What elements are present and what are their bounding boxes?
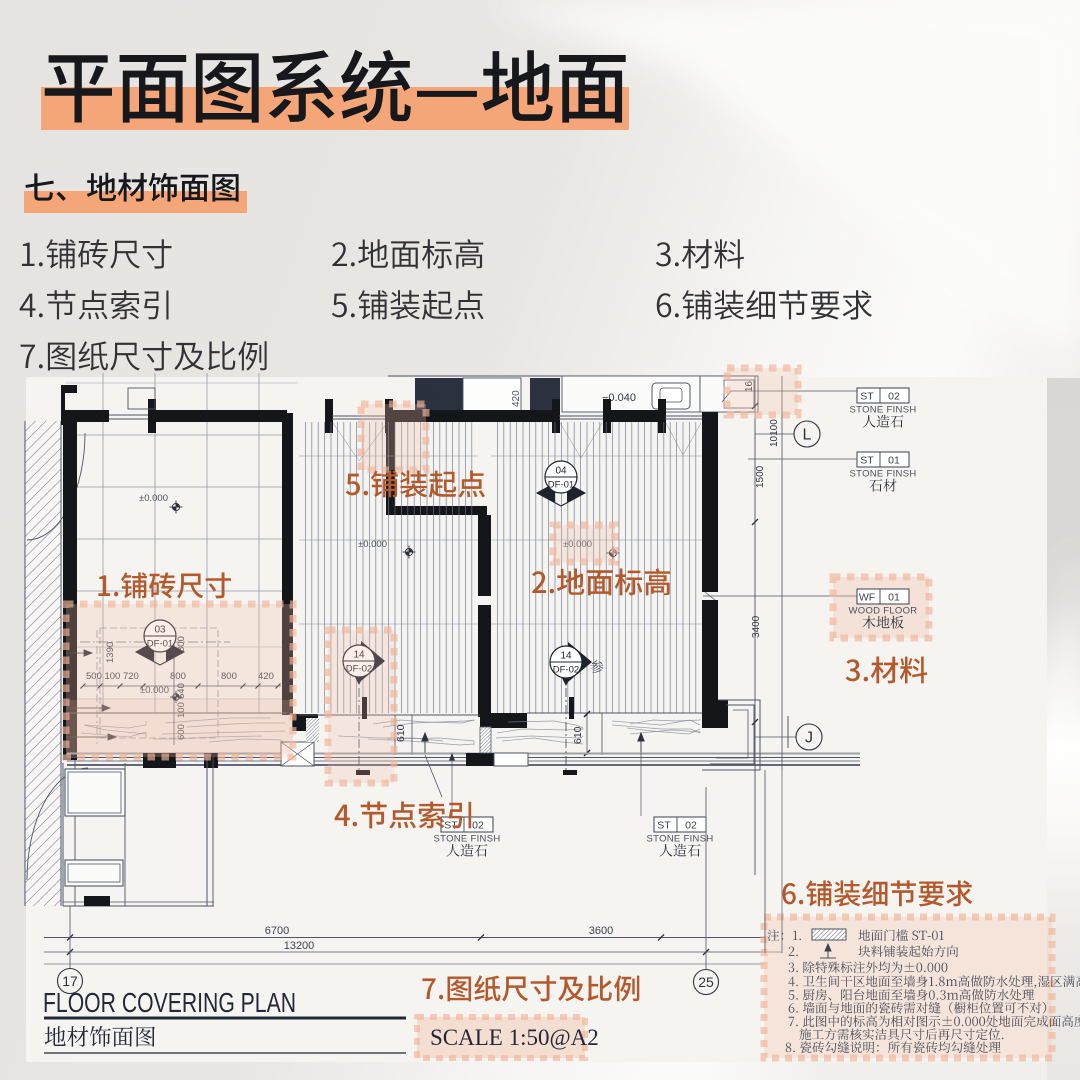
svg-text:J: J [805, 730, 813, 747]
svg-text:STONE FINSH: STONE FINSH [850, 469, 917, 480]
svg-text:1500: 1500 [755, 465, 766, 488]
svg-text:ST: ST [860, 455, 874, 467]
svg-text:04: 04 [555, 466, 567, 477]
svg-text:25: 25 [698, 974, 714, 990]
svg-text:3400: 3400 [751, 615, 762, 638]
svg-text:02: 02 [888, 391, 900, 403]
svg-text:01: 01 [888, 592, 900, 604]
svg-text:±0.000: ±0.000 [358, 539, 387, 550]
svg-text:DF-01: DF-01 [548, 480, 574, 491]
svg-text:02: 02 [685, 820, 697, 832]
svg-text:STONE FINSH: STONE FINSH [434, 834, 501, 845]
svg-text:ST: ST [860, 391, 874, 403]
svg-text:14: 14 [560, 651, 572, 662]
svg-text:3600: 3600 [589, 925, 613, 937]
svg-text:13200: 13200 [284, 940, 315, 952]
svg-text:420: 420 [511, 390, 522, 407]
svg-text:SCALE 1:50@A2: SCALE 1:50@A2 [430, 1025, 599, 1050]
svg-text:L: L [803, 427, 812, 444]
svg-text:ST: ST [657, 820, 671, 832]
svg-text:FLOOR COVERING PLAN: FLOOR COVERING PLAN [43, 987, 296, 1018]
svg-text:01: 01 [888, 455, 900, 467]
svg-text:WF: WF [859, 592, 875, 604]
svg-text:02: 02 [472, 820, 484, 832]
svg-text:STONE FINSH: STONE FINSH [647, 834, 714, 845]
svg-text:6700: 6700 [265, 925, 289, 937]
svg-text:STONE FINSH: STONE FINSH [850, 405, 917, 416]
svg-text:±0.000: ±0.000 [139, 493, 168, 504]
svg-text:WOOD FLOOR: WOOD FLOOR [849, 606, 918, 617]
svg-text:DF-02: DF-02 [553, 665, 579, 676]
svg-text:610: 610 [572, 726, 584, 744]
svg-text:10100: 10100 [769, 419, 780, 447]
